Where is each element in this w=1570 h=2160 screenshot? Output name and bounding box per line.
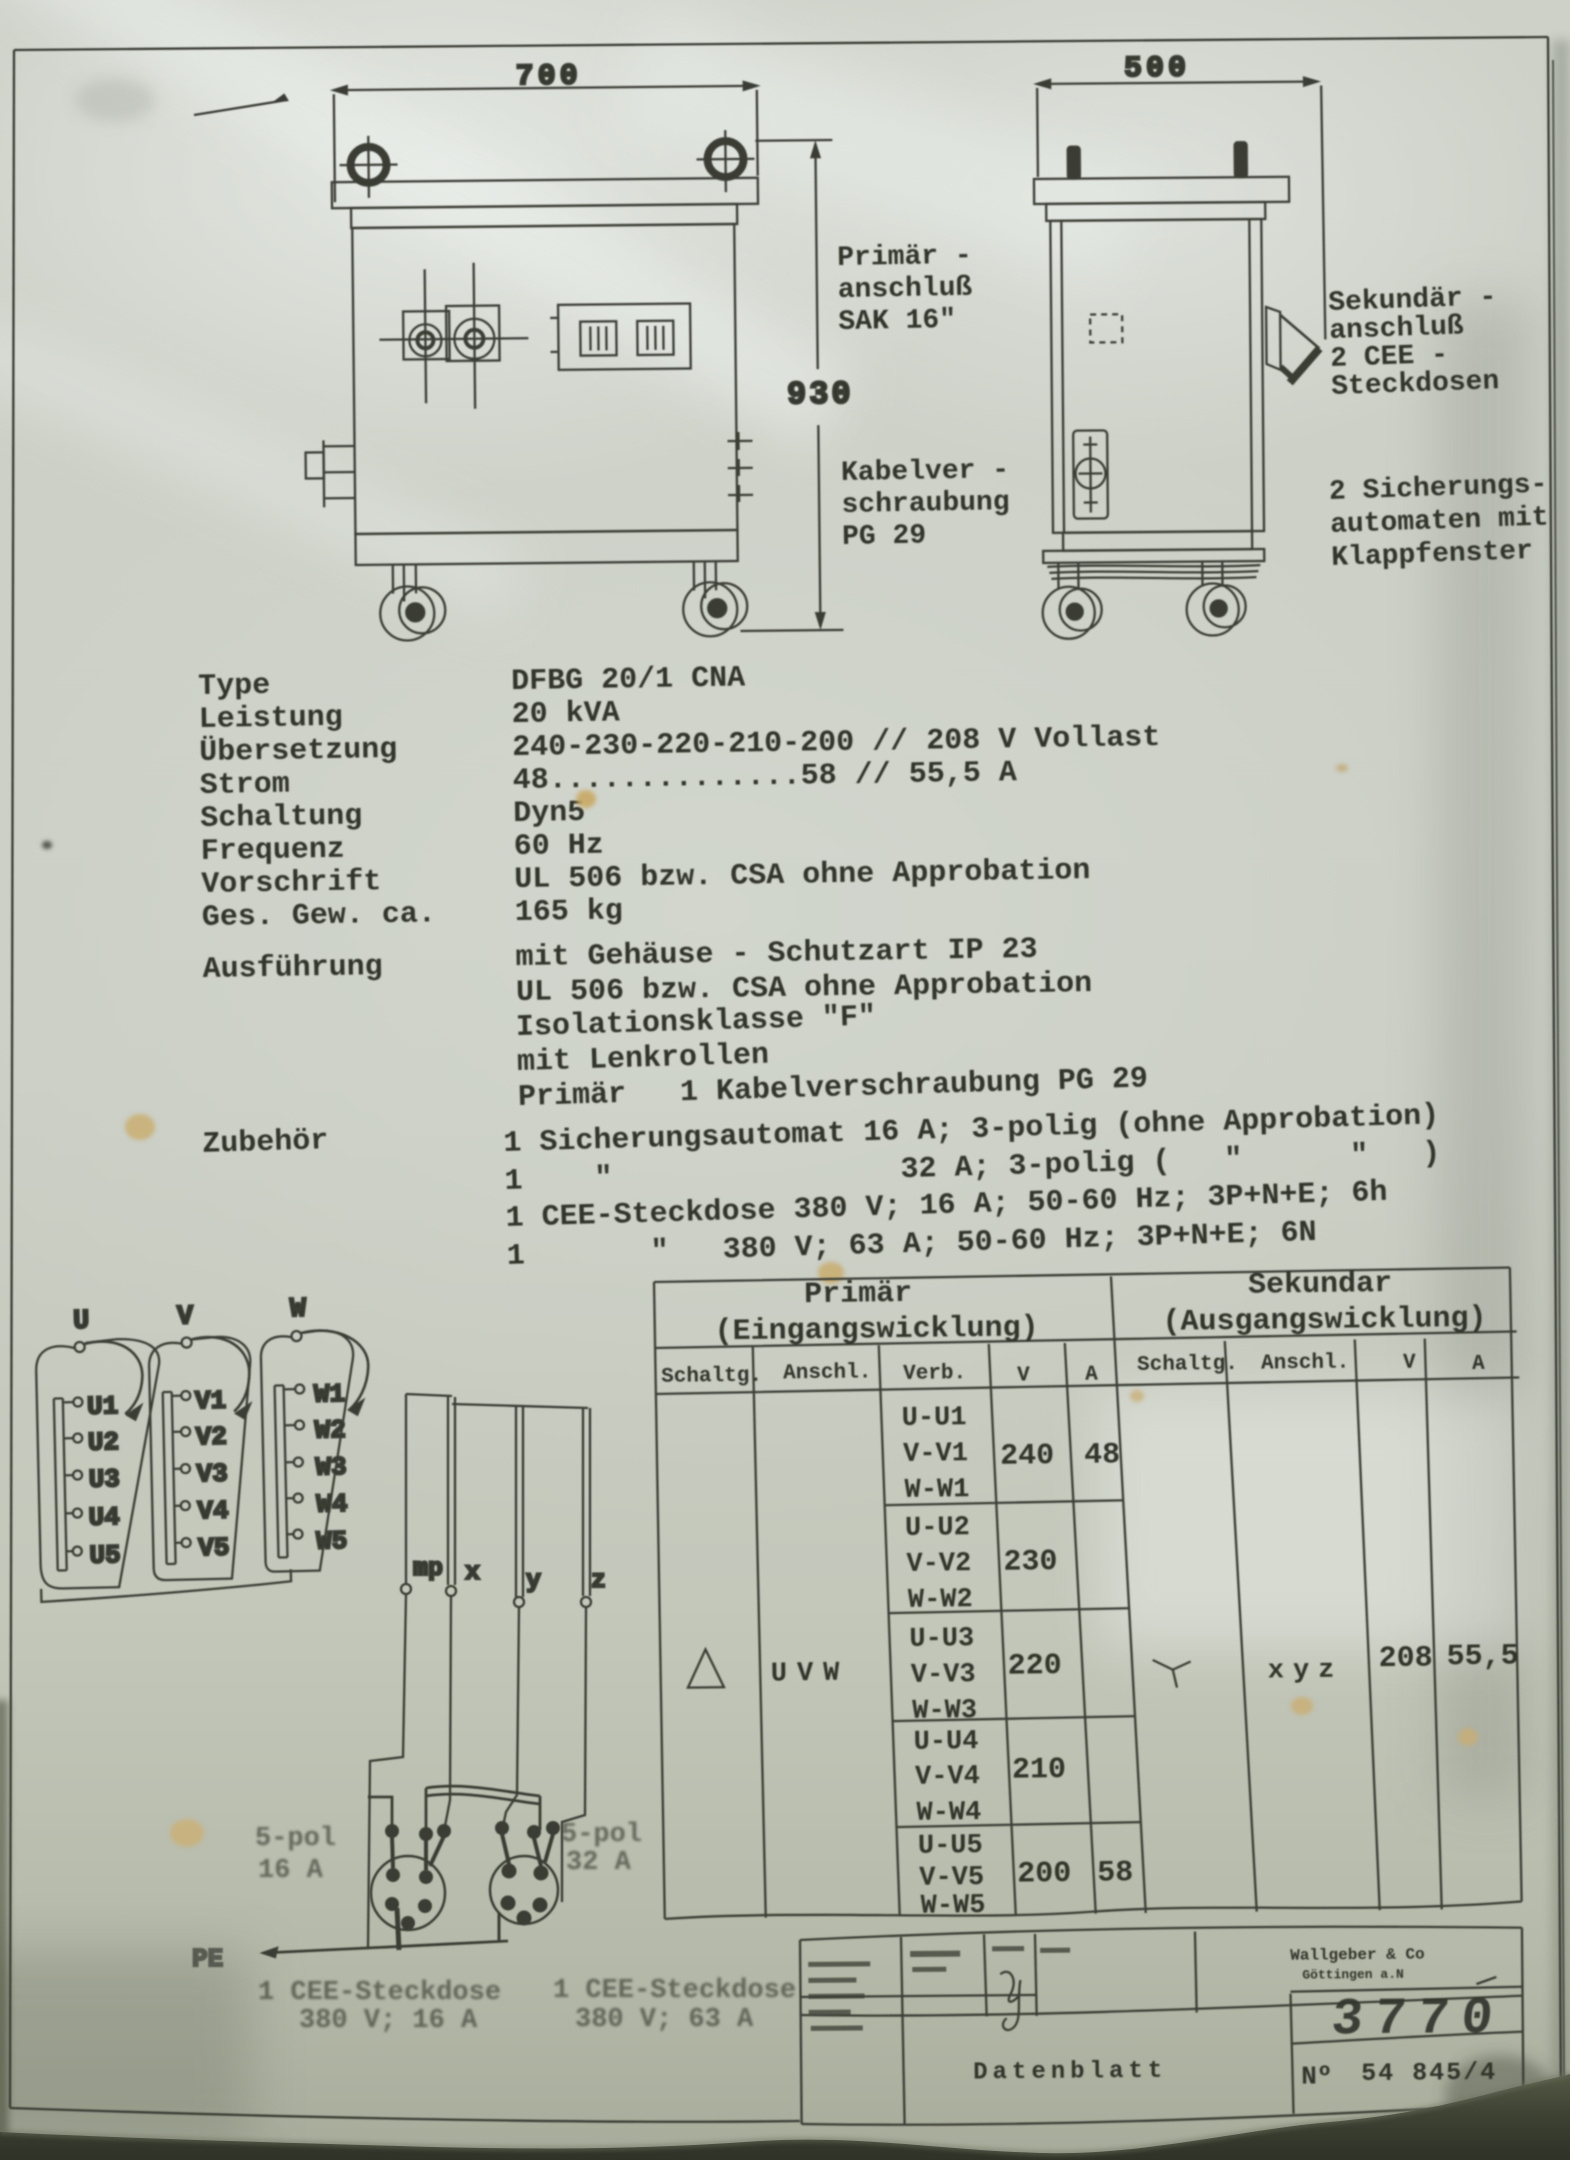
svg-text:230: 230 [1003, 1545, 1057, 1580]
svg-text:20 kVA: 20 kVA [511, 696, 620, 732]
svg-text:54 845/4: 54 845/4 [1361, 2058, 1497, 2088]
svg-text:(Eingangswicklung): (Eingangswicklung) [714, 1311, 1038, 1349]
svg-text:Primär: Primär [804, 1277, 912, 1312]
svg-text:Sekundar: Sekundar [1248, 1267, 1392, 1303]
svg-text:mp: mp [413, 1554, 443, 1583]
svg-text:W1: W1 [313, 1379, 345, 1410]
svg-text:W4: W4 [316, 1489, 348, 1520]
svg-text:V1: V1 [195, 1386, 227, 1417]
svg-text:V-V5: V-V5 [919, 1863, 984, 1894]
svg-text:32 A: 32 A [566, 1848, 632, 1878]
svg-text:U5: U5 [89, 1540, 121, 1571]
svg-text:380 V; 16 A: 380 V; 16 A [299, 2006, 478, 2036]
svg-text:A: A [1085, 1364, 1098, 1387]
svg-text:Übersetzung: Übersetzung [199, 732, 398, 770]
svg-text:V-V3: V-V3 [911, 1660, 976, 1691]
svg-text:208: 208 [1378, 1642, 1432, 1677]
svg-text:U1: U1 [87, 1391, 119, 1422]
svg-text:Wallgeber & Co: Wallgeber & Co [1290, 1946, 1425, 1965]
svg-text:U-U4: U-U4 [913, 1727, 978, 1758]
svg-text:V4: V4 [197, 1496, 229, 1527]
svg-text:schraubung: schraubung [841, 487, 1010, 521]
svg-text:2 Sicherungs-: 2 Sicherungs- [1328, 469, 1547, 508]
svg-text:Zubehör: Zubehör [202, 1124, 329, 1162]
svg-text:930: 930 [787, 376, 854, 414]
svg-text:U-U1: U-U1 [902, 1403, 967, 1434]
svg-text:Schaltg.: Schaltg. [1137, 1353, 1238, 1377]
svg-text:Verb.: Verb. [903, 1362, 966, 1386]
svg-text:W-W4: W-W4 [916, 1798, 981, 1829]
svg-text:Schaltung: Schaltung [200, 799, 363, 836]
svg-text:V2: V2 [195, 1422, 227, 1453]
svg-text:PE: PE [192, 1944, 223, 1974]
svg-text:y: y [526, 1566, 541, 1595]
svg-text:U3: U3 [88, 1464, 120, 1495]
svg-text:UVW: UVW [771, 1659, 850, 1690]
svg-text:165 kg: 165 kg [515, 894, 624, 930]
svg-text:Nº: Nº [1301, 2061, 1332, 2091]
svg-text:W2: W2 [314, 1415, 346, 1446]
svg-text:380 V; 63 A: 380 V; 63 A [575, 2005, 754, 2035]
svg-text:(Ausgangswicklung): (Ausgangswicklung) [1162, 1302, 1486, 1340]
svg-text:W3: W3 [315, 1452, 347, 1483]
svg-text:Datenblatt: Datenblatt [973, 2058, 1167, 2087]
svg-text:V-V1: V-V1 [903, 1439, 968, 1470]
svg-text:5-pol: 5-pol [255, 1824, 336, 1854]
svg-text:Strom: Strom [200, 768, 291, 803]
svg-text:V: V [1403, 1352, 1416, 1375]
svg-text:V5: V5 [198, 1533, 230, 1564]
svg-text:Frequenz: Frequenz [201, 833, 346, 869]
svg-text:U: U [73, 1307, 90, 1337]
svg-text:W-W5: W-W5 [920, 1891, 985, 1922]
svg-text:automaten mit: automaten mit [1330, 502, 1549, 541]
svg-text:U-U2: U-U2 [905, 1513, 970, 1544]
svg-text:58: 58 [1097, 1856, 1133, 1890]
svg-text:V-V4: V-V4 [915, 1762, 980, 1793]
svg-text:V-V2: V-V2 [906, 1549, 971, 1580]
svg-text:A: A [1472, 1353, 1485, 1376]
svg-text:240: 240 [1000, 1439, 1054, 1474]
svg-text:55,5: 55,5 [1446, 1639, 1518, 1674]
svg-text:z: z [591, 1566, 606, 1595]
svg-text:V3: V3 [196, 1459, 228, 1490]
svg-text:Ges. Gew. ca.: Ges. Gew. ca. [202, 897, 437, 935]
svg-text:1 CEE-Steckdose: 1 CEE-Steckdose [553, 1976, 796, 2006]
svg-text:xyz: xyz [1268, 1656, 1344, 1687]
svg-text:60 Hz: 60 Hz [514, 829, 605, 864]
svg-text:1 CEE-Steckdose: 1 CEE-Steckdose [258, 1978, 501, 2008]
svg-text:200: 200 [1017, 1857, 1071, 1892]
svg-text:Anschl.: Anschl. [1261, 1352, 1349, 1376]
svg-text:W: W [290, 1295, 308, 1325]
svg-text:W-W1: W-W1 [904, 1475, 969, 1506]
svg-text:Leistung: Leistung [198, 701, 343, 737]
svg-text:48: 48 [1084, 1438, 1120, 1472]
svg-text:W5: W5 [316, 1526, 348, 1557]
svg-text:Type: Type [198, 669, 271, 704]
svg-text:Kabelver -: Kabelver - [841, 455, 1010, 489]
svg-text:3770: 3770 [1329, 1989, 1507, 2049]
svg-text:Anschl.: Anschl. [783, 1361, 871, 1385]
svg-text:V: V [1017, 1364, 1030, 1387]
svg-text:U-U5: U-U5 [918, 1831, 983, 1862]
svg-text:U-U3: U-U3 [909, 1624, 974, 1655]
svg-text:SAK 16″: SAK 16″ [838, 305, 956, 338]
svg-text:V: V [177, 1302, 195, 1332]
svg-text:5-pol: 5-pol [561, 1820, 642, 1850]
svg-text:Schaltg.: Schaltg. [661, 1365, 762, 1389]
svg-text:PG 29: PG 29 [842, 521, 927, 553]
svg-text:Göttingen a.N: Göttingen a.N [1302, 1967, 1404, 1983]
svg-text:Primär -: Primär - [837, 241, 972, 274]
svg-text:500: 500 [1124, 52, 1190, 87]
svg-text:Vorschrift: Vorschrift [201, 865, 382, 902]
svg-text:16 A: 16 A [258, 1856, 324, 1886]
svg-text:Ausführung: Ausführung [202, 950, 383, 987]
svg-text:anschluß: anschluß [838, 273, 973, 306]
svg-text:Dyn5: Dyn5 [513, 796, 586, 831]
svg-text:W-W2: W-W2 [908, 1585, 973, 1616]
svg-text:x: x [465, 1558, 480, 1587]
svg-text:W-W3: W-W3 [912, 1696, 977, 1727]
svg-text:DFBG 20/1 CNA: DFBG 20/1 CNA [511, 661, 746, 699]
svg-text:U2: U2 [87, 1427, 119, 1458]
svg-text:210: 210 [1012, 1753, 1066, 1788]
svg-text:U4: U4 [88, 1502, 120, 1533]
svg-text:Klappfenster: Klappfenster [1331, 536, 1534, 574]
svg-text:220: 220 [1008, 1649, 1062, 1684]
svg-text:Steckdosen: Steckdosen [1331, 366, 1500, 403]
